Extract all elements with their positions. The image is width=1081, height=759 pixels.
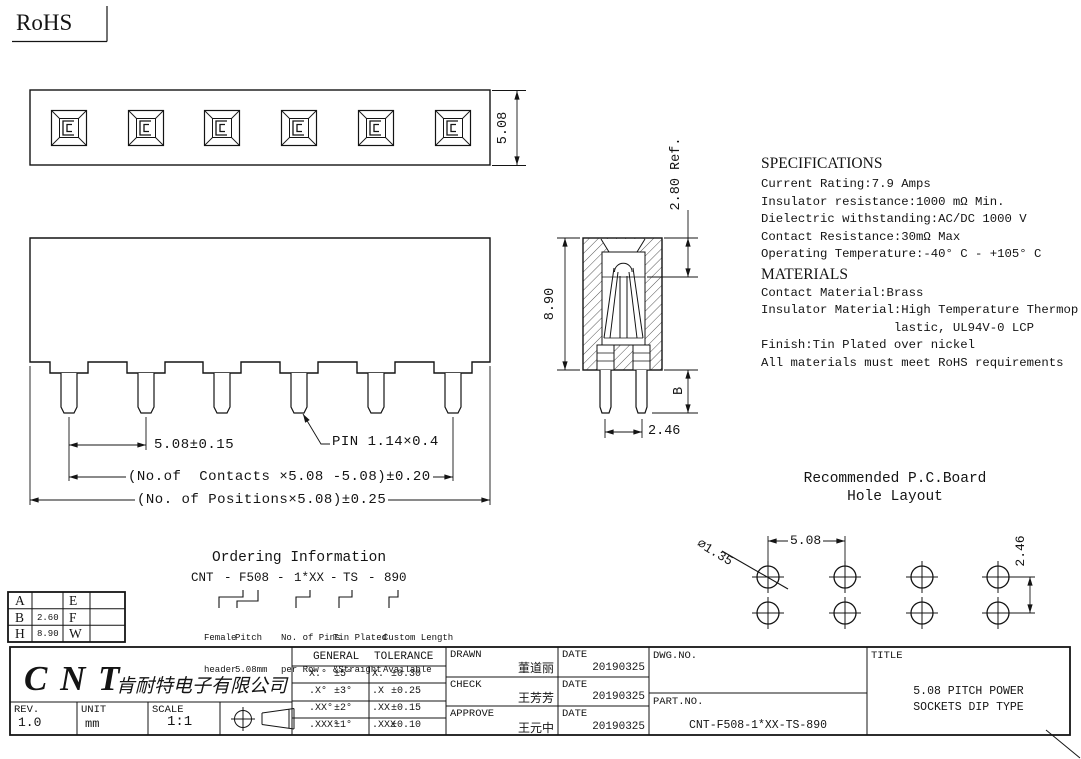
company-name: 肯耐特电子有限公司 <box>116 676 287 699</box>
ordering-code-part: CNT <box>191 571 214 586</box>
ordering-label-line: 5.08mm <box>235 665 267 676</box>
pcb-hole-pitch: 5.08 <box>788 533 823 549</box>
part-no-value: CNT-F508-1*XX-TS-890 <box>649 719 867 733</box>
tolerance-header-tolerance: TOLERANCE <box>374 651 433 664</box>
tolerance-cell: ±3° <box>334 686 352 698</box>
front-view <box>30 238 490 413</box>
drawing-title-line2: SOCKETS DIP TYPE <box>867 701 1070 715</box>
dim-side-ref: 2.80 Ref. <box>669 138 685 211</box>
top-view <box>30 90 490 165</box>
part-no-label: PART.NO. <box>653 696 703 709</box>
ordering-label: Female header <box>204 611 236 686</box>
approve-name: 王元中 <box>468 721 554 735</box>
ordering-label-line: Tin Plated <box>333 633 387 644</box>
ordering-label-line: header <box>204 665 236 676</box>
pcb-title-line1: Recommended P.C.Board <box>765 471 1025 488</box>
dim-table-key: B <box>15 610 24 626</box>
check-name: 王芳芳 <box>468 691 554 705</box>
drawing-sheet: { "rohs": "RoHS", "specifications": { "h… <box>0 0 1081 759</box>
date-label: DATE <box>562 679 587 692</box>
check-label: CHECK <box>450 679 482 692</box>
dim-positions-formula: (No. of Positions×5.08)±0.25 <box>135 492 388 509</box>
materials-line: Contact Material:Brass <box>761 285 1078 303</box>
dim-table-grid <box>8 592 125 642</box>
tolerance-cell: ±0.25 <box>391 686 421 698</box>
pcb-title-line2: Hole Layout <box>765 489 1025 506</box>
tolerance-cell: .X <box>372 686 384 698</box>
unit-value: mm <box>85 717 99 731</box>
tolerance-cell: ±0.30 <box>391 669 421 681</box>
dim-pin-pitch: 5.08±0.15 <box>152 437 236 454</box>
ordering-code-dash: - <box>277 571 285 586</box>
tolerance-header-general: GENERAL <box>313 651 359 664</box>
tolerance-cell: ±5° <box>334 669 352 681</box>
tolerance-cell: X.° <box>309 669 327 681</box>
ordering-code-part: TS <box>343 571 358 586</box>
tolerance-cell: ±2° <box>334 703 352 715</box>
ordering-code-part: 1*XX <box>294 571 324 586</box>
rohs-label: RoHS <box>16 9 72 37</box>
ordering-code-part: 890 <box>384 571 407 586</box>
company-logo: C N T <box>24 658 122 700</box>
dim-table-key: E <box>69 593 77 609</box>
dwg-no-label: DWG.NO. <box>653 650 697 663</box>
pcb-row-spacing: 2.46 <box>1013 535 1029 566</box>
materials-line: All materials must meet RoHS requirement… <box>761 355 1078 373</box>
ordering-label: Pitch 5.08mm <box>235 611 267 686</box>
drawn-name: 董道丽 <box>468 661 554 675</box>
dim-side-height: 8.90 <box>543 288 559 320</box>
ordering-leader-lines <box>219 590 398 608</box>
date-label: DATE <box>562 708 587 721</box>
tolerance-cell: .XX <box>372 703 390 715</box>
dim-pin-size: PIN 1.14×0.4 <box>332 434 439 451</box>
ordering-label-line: Pitch <box>235 633 267 644</box>
dim-table-key: W <box>69 626 82 642</box>
spec-line: Operating Temperature:-40° C - +105° C <box>761 246 1078 264</box>
dim-contacts-formula: (No.of Contacts ×5.08 -5.08)±0.20 <box>126 469 433 486</box>
drawn-date: 20190325 <box>560 662 645 675</box>
tolerance-cell: ±0.15 <box>391 703 421 715</box>
dim-table-key: F <box>69 610 77 626</box>
ordering-code-dash: - <box>368 571 376 586</box>
date-label: DATE <box>562 649 587 662</box>
specifications-heading: SPECIFICATIONS <box>761 152 1078 176</box>
tolerance-cell: X. <box>372 669 384 681</box>
dim-table-key: H <box>15 626 25 642</box>
materials-heading: MATERIALS <box>761 264 1078 285</box>
rev-value: 1.0 <box>18 715 41 731</box>
ordering-title: Ordering Information <box>212 550 386 567</box>
ordering-code-part: F508 <box>239 571 269 586</box>
dim-table-value: 2.60 <box>37 613 59 624</box>
materials-line: Finish:Tin Plated over nickel <box>761 337 1078 355</box>
tolerance-cell: .XX° <box>309 703 333 715</box>
tolerance-cell: .X° <box>309 686 327 698</box>
title-label: TITLE <box>871 650 903 663</box>
dim-table-key: A <box>15 593 25 609</box>
materials-line: Insulator Material:High Temperature Ther… <box>761 302 1078 320</box>
spec-line: Current Rating:7.9 Amps <box>761 176 1078 194</box>
side-view <box>583 238 662 413</box>
tolerance-cell: ±1° <box>334 720 352 732</box>
approve-label: APPROVE <box>450 708 494 721</box>
dim-table-value: 8.90 <box>37 629 59 640</box>
dim-side-b: B <box>672 387 688 395</box>
ordering-label-line: No. of Pins <box>281 633 340 644</box>
materials-line: lastic, UL94V-0 LCP <box>761 320 1078 338</box>
spec-line: Insulator resistance:1000 mΩ Min. <box>761 194 1078 212</box>
drawing-title-line1: 5.08 PITCH POWER <box>867 685 1070 699</box>
dim-top-height: 5.08 <box>496 112 512 144</box>
unit-label: UNIT <box>81 704 106 717</box>
ordering-label-line: Female <box>204 633 236 644</box>
check-date: 20190325 <box>560 691 645 704</box>
specifications-block: SPECIFICATIONS Current Rating:7.9 Amps I… <box>761 152 1078 372</box>
ordering-code-dash: - <box>224 571 232 586</box>
dim-side-pin-spacing: 2.46 <box>648 424 680 440</box>
tolerance-cell: ±0.10 <box>391 720 421 732</box>
ordering-label-line: Custom Length <box>383 633 453 644</box>
ordering-code-dash: - <box>330 571 338 586</box>
approve-date: 20190325 <box>560 721 645 734</box>
spec-line: Dielectric withstanding:AC/DC 1000 V <box>761 211 1078 229</box>
pcb-hole-layout <box>722 536 1035 629</box>
drawing-linework <box>0 0 1081 759</box>
spec-line: Contact Resistance:30mΩ Max <box>761 229 1078 247</box>
projection-symbol-icon <box>231 707 294 731</box>
drawn-label: DRAWN <box>450 649 482 662</box>
scale-value: 1:1 <box>167 714 192 731</box>
